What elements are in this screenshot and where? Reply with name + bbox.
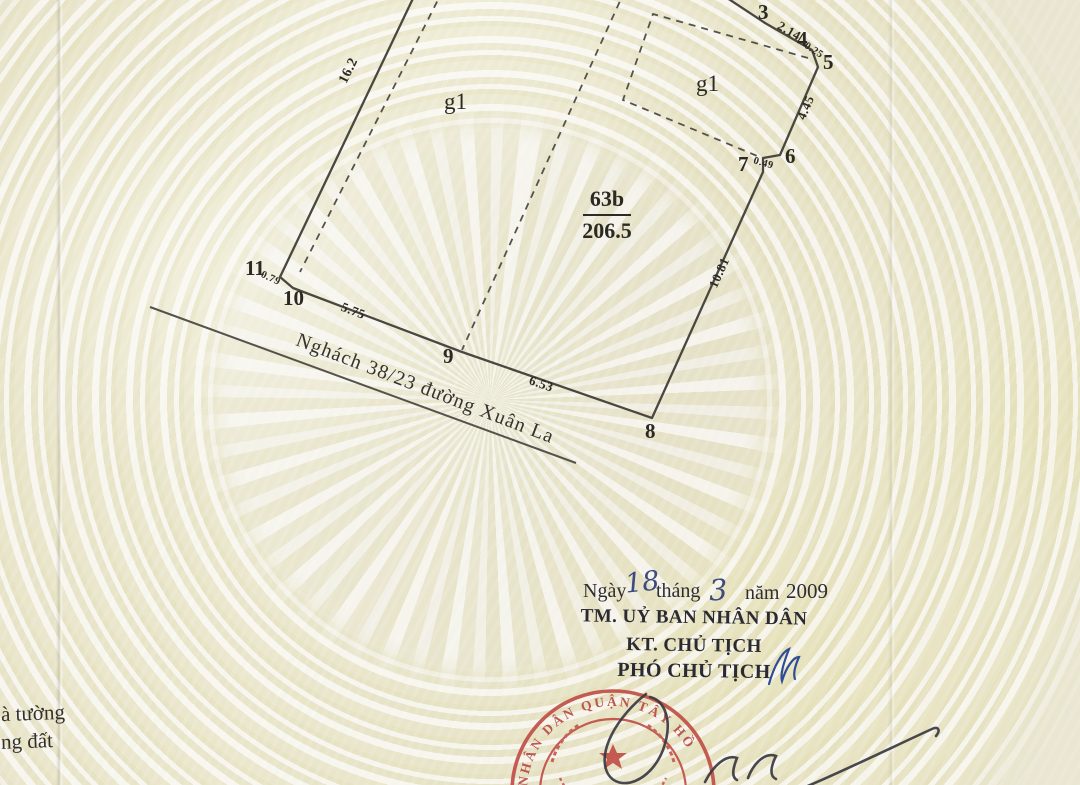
date-word-year: năm [745,582,779,605]
vertex-5: 5 [823,52,834,73]
scanned-land-document: NHÂN DÂN QUẬN TÂY HỒ 3 4 5 6 7 8 9 10 11… [0,0,1080,785]
vertex-8: 8 [645,421,656,442]
seal-star [599,744,627,769]
authority-line: TM. UỶ BAN NHÂN DÂN [548,605,840,631]
margin-fragment-1: à tường [1,700,66,727]
date-word-month: tháng [656,580,700,603]
title-line: KT. CHỦ TỊCH [548,633,840,659]
vertex-7: 7 [738,154,749,175]
vertex-6: 6 [785,146,796,167]
street-line [150,307,576,463]
dashed-line-left-strip [300,0,443,272]
parcel-area: 206.5 [570,216,644,244]
vertex-10: 10 [283,288,304,309]
margin-fragment-2: ng đất [1,728,54,755]
vertex-3: 3 [758,2,769,23]
date-word-day: Ngày [583,580,626,603]
date-month-handwritten: 3 [708,573,728,608]
zone-label-right: g1 [696,72,719,95]
date-year: 2009 [786,579,828,604]
zone-label-left: g1 [444,90,467,113]
parcel-number: 63b [583,186,631,216]
official-red-seal: NHÂN DÂN QUẬN TÂY HỒ [512,691,714,785]
diagram-layer: NHÂN DÂN QUẬN TÂY HỒ [0,0,1080,785]
signer-title-line: PHÓ CHỦ TỊCH [548,658,840,685]
dashed-line-center [462,0,625,350]
vertex-9: 9 [443,346,454,367]
parcel-number-area: 63b 206.5 [570,186,644,244]
